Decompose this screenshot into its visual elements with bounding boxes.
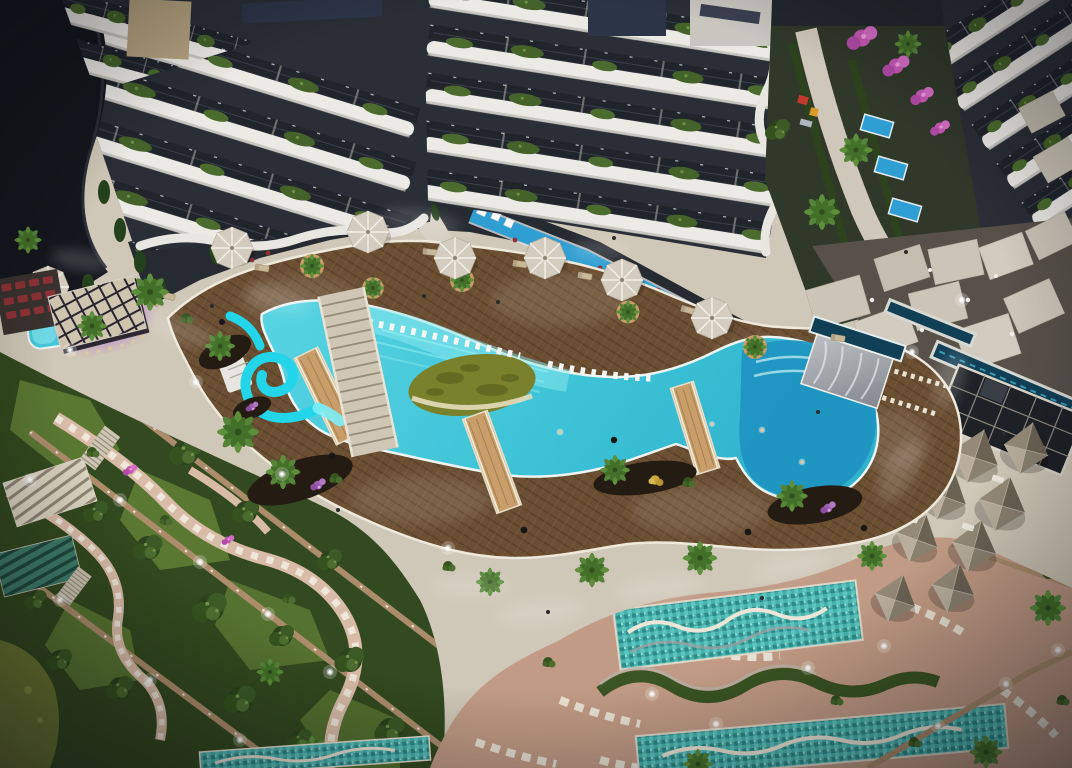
vignette-overlay — [0, 0, 1072, 768]
rendering-canvas — [0, 0, 1072, 768]
resort-aerial-rendering — [0, 0, 1072, 768]
